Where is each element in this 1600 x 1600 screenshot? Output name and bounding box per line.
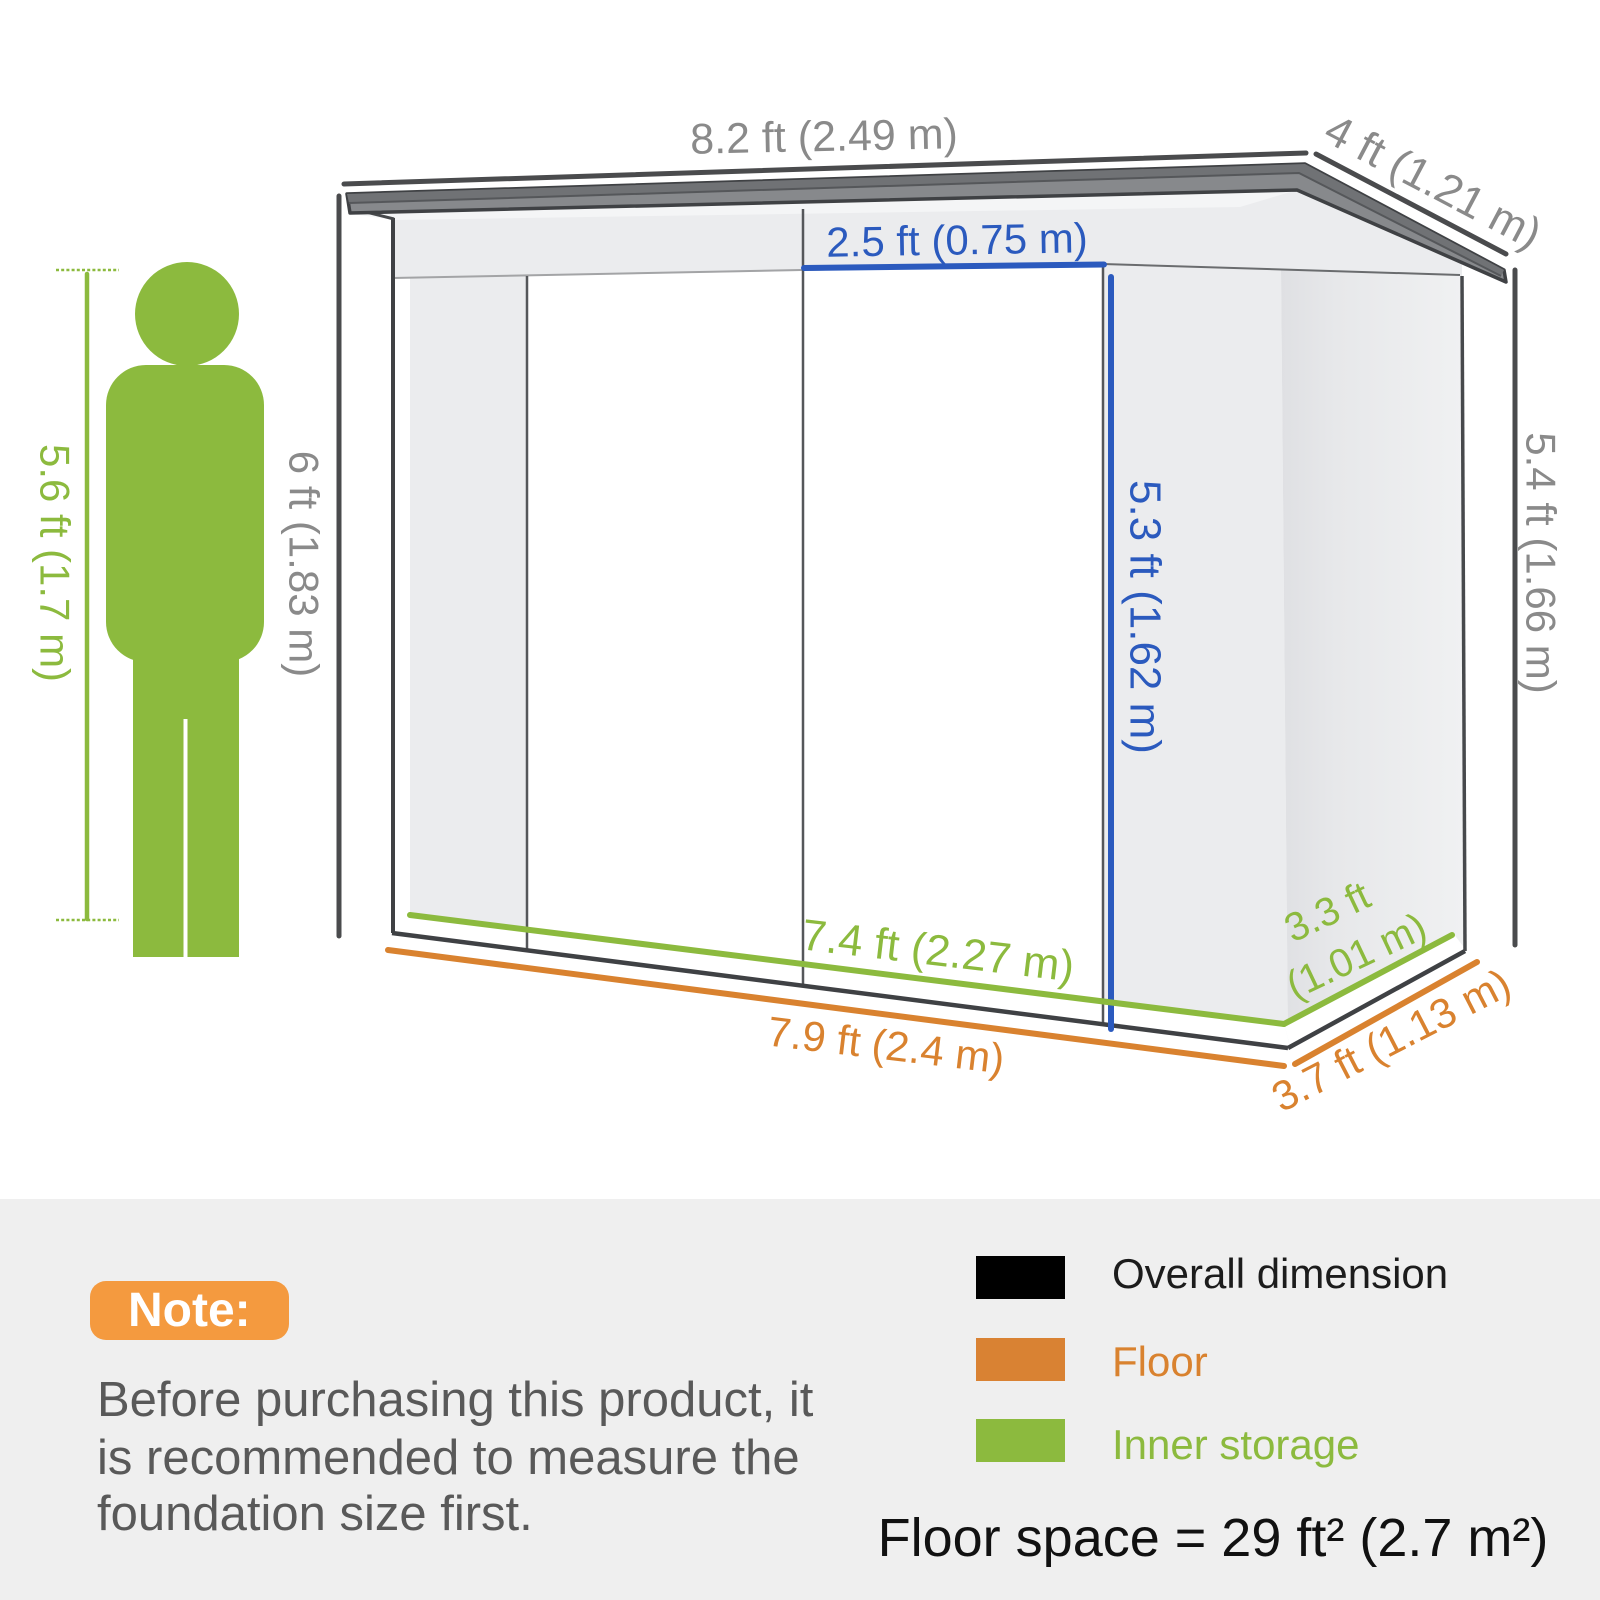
svg-text:Floor: Floor (1112, 1338, 1208, 1385)
svg-text:Overall dimension: Overall dimension (1112, 1250, 1448, 1297)
svg-text:Inner storage: Inner storage (1112, 1421, 1360, 1468)
svg-text:5.3 ft (1.62 m): 5.3 ft (1.62 m) (1121, 480, 1170, 754)
svg-text:Before purchasing this product: Before purchasing this product, it (97, 1373, 814, 1427)
svg-text:Floor space = 29 ft² (2.7 m²): Floor space = 29 ft² (2.7 m²) (878, 1508, 1549, 1568)
svg-text:Note:: Note: (128, 1284, 251, 1337)
svg-text:5.6 ft (1.7 m): 5.6 ft (1.7 m) (32, 444, 79, 682)
svg-text:5.4 ft (1.66 m): 5.4 ft (1.66 m) (1518, 432, 1565, 693)
svg-text:2.5 ft (0.75 m): 2.5 ft (0.75 m) (826, 214, 1088, 266)
svg-text:is recommended to measure the: is recommended to measure the (97, 1431, 800, 1485)
svg-text:6 ft (1.83 m): 6 ft (1.83 m) (281, 451, 328, 677)
svg-text:8.2 ft (2.49 m): 8.2 ft (2.49 m) (690, 110, 959, 164)
svg-text:foundation size first.: foundation size first. (97, 1487, 533, 1541)
